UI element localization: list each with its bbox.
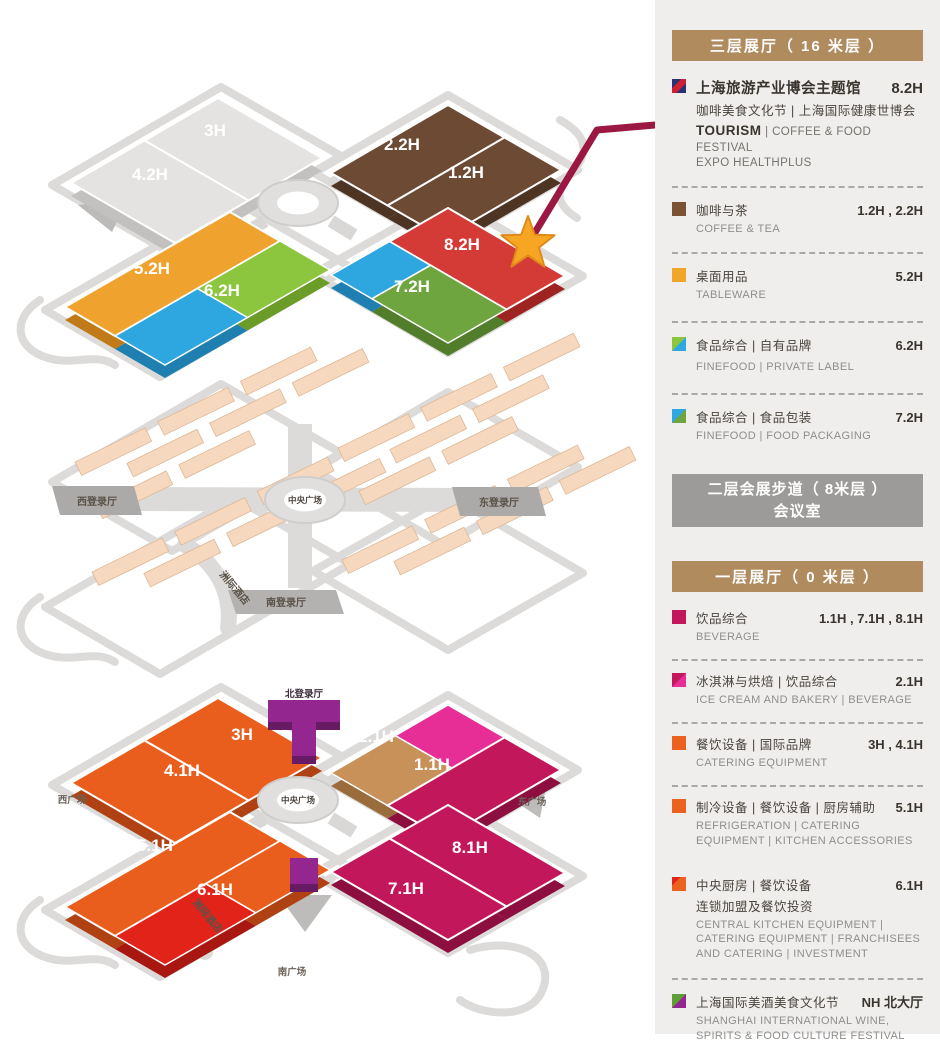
legend-item-icecream: 冰淇淋与烘焙 | 饮品综合2.1H ICE CREAM AND BAKERY |… <box>672 671 923 708</box>
legend-sidebar: 三层展厅（ 16 米层 ） 上海旅游产业博会主题馆 8.2H 咖啡美食文化节 |… <box>655 0 940 1034</box>
finefood-packaging-icon <box>672 409 686 423</box>
floor3-map: 3H 4.2H 2.2H 1.2H 5.2H 6.2H 8.2H 7.2H <box>21 87 655 378</box>
south-stub <box>290 858 318 884</box>
item-cn: 桌面用品 <box>696 266 748 285</box>
feature-title-cn: 上海旅游产业博会主题馆 <box>696 77 861 98</box>
beverage-icon <box>672 610 686 624</box>
legend-item-coffee-tea: 咖啡与茶1.2H , 2.2H COFFEE & TEA <box>672 200 923 237</box>
item-halls: 7.2H <box>896 410 923 425</box>
central-plaza-label-floor2: 中央广场 <box>288 495 323 505</box>
item-cn: 食品综合 | 自有品牌 <box>696 335 812 354</box>
central-plaza-label-floor1: 中央广场 <box>281 795 316 805</box>
hall-1.1h-label: 1.1H <box>414 755 450 774</box>
floor2-header: 二层会展步道（ 8米层 ） 会议室 <box>672 474 923 528</box>
coffee-tea-icon <box>672 202 686 216</box>
item-halls: 3H , 4.1H <box>868 737 923 752</box>
divider <box>672 785 923 787</box>
hall-4.2h-label: 4.2H <box>132 165 168 184</box>
refrigeration-icon <box>672 799 686 813</box>
legend-item-feature: 上海旅游产业博会主题馆 8.2H 咖啡美食文化节 | 上海国际健康世博会 TOU… <box>672 77 923 172</box>
legend-item-tableware: 桌面用品5.2H TABLEWARE <box>672 266 923 303</box>
item-halls: 5.2H <box>896 269 923 284</box>
item-cn: 饮品综合 <box>696 608 748 627</box>
item-halls: 5.1H <box>896 800 923 815</box>
item-en: CATERING EQUIPMENT <box>696 756 923 771</box>
item-en: REFRIGERATION | CATERING EQUIPMENT | KIT… <box>696 819 923 849</box>
item-en: CENTRAL KITCHEN EQUIPMENT | CATERING EQU… <box>696 918 923 963</box>
legend-item-central-kitchen: 中央厨房 | 餐饮设备6.1H 连锁加盟及餐饮投资 CENTRAL KITCHE… <box>672 875 923 963</box>
divider <box>672 186 923 188</box>
west-hall-label: 西登录厅 <box>77 495 117 508</box>
item-en: COFFEE & TEA <box>696 222 923 237</box>
item-halls: 2.1H <box>896 674 923 689</box>
north-hall-label: 北登录厅 <box>285 688 324 700</box>
divider <box>672 393 923 395</box>
feature-halls: 8.2H <box>891 80 923 97</box>
divider <box>672 722 923 724</box>
item-halls: 6.1H <box>896 878 923 893</box>
hall-2.2h-label: 2.2H <box>384 135 420 154</box>
hall-2.1h-label: 2.1H <box>358 727 394 746</box>
catering-equipment-icon <box>672 736 686 750</box>
divider <box>672 659 923 661</box>
feature-en-line2: EXPO HEALTHPLUS <box>696 157 812 169</box>
hall-3h-floor3-label: 3H <box>204 121 226 140</box>
hall-1.2h-label: 1.2H <box>448 163 484 182</box>
south-hall-label: 南登录厅 <box>266 596 306 609</box>
item-cn: 制冷设备 | 餐饮设备 | 厨房辅助 <box>696 797 875 816</box>
floor1-header: 一层展厅（ 0 米层 ） <box>672 561 923 592</box>
tourism-expo-icon <box>672 79 686 93</box>
item-halls: NH 北大厅 <box>862 992 923 1011</box>
feature-title-en: TOURISM | COFFEE & FOOD FESTIVALEXPO HEA… <box>696 122 923 172</box>
item-halls: 1.1H , 7.1H , 8.1H <box>819 611 923 626</box>
item-en: FINEFOOD | FOOD PACKAGING <box>696 429 923 444</box>
west-plaza-label: 西广场 <box>58 794 87 806</box>
floor2-header-line2: 会议室 <box>672 501 923 523</box>
icecream-bakery-icon <box>672 673 686 687</box>
hall-8.2h-label: 8.2H <box>444 235 480 254</box>
floor1-map: 3H 4.1H 2.1H 1.1H 5.1H 6.1H 8.1H 7.1H 北登… <box>21 687 583 1013</box>
hall-5.2h-label: 5.2H <box>134 259 170 278</box>
item-en: TABLEWARE <box>696 288 923 303</box>
hall-6.1h-label: 6.1H <box>197 880 233 899</box>
central-ring-hole-floor3 <box>277 192 319 215</box>
east-plaza-label: 东广场 <box>518 796 547 808</box>
hall-8.1h-label: 8.1H <box>452 838 488 857</box>
legend-item-beverage: 饮品综合1.1H , 7.1H , 8.1H BEVERAGE <box>672 608 923 645</box>
item-cn: 咖啡与茶 <box>696 200 748 219</box>
legend-item-finefood-packaging: 食品综合 | 食品包装7.2H FINEFOOD | FOOD PACKAGIN… <box>672 407 923 444</box>
item-en: FINEFOOD | PRIVATE LABEL <box>696 360 923 375</box>
finefood-private-icon <box>672 337 686 351</box>
hall-4.1h-label: 4.1H <box>164 761 200 780</box>
floor2-header-line1: 二层会展步道（ 8米层 ） <box>672 479 923 501</box>
hall-3h-floor1-label: 3H <box>231 725 253 744</box>
item-cn: 餐饮设备 | 国际品牌 <box>696 734 812 753</box>
floor3-header: 三层展厅（ 16 米层 ） <box>672 30 923 61</box>
divider <box>672 321 923 323</box>
east-hall-label: 东登录厅 <box>479 496 519 509</box>
central-kitchen-icon <box>672 877 686 891</box>
divider <box>672 978 923 980</box>
legend-item-wine-festival: 上海国际美酒美食文化节NH 北大厅 SHANGHAI INTERNATIONAL… <box>672 992 923 1044</box>
floor-maps: 3H 4.2H 2.2H 1.2H 5.2H 6.2H 8.2H 7.2H <box>0 0 655 1034</box>
wine-festival-icon <box>672 994 686 1008</box>
item-halls: 6.2H <box>896 338 923 353</box>
item-en: BEVERAGE <box>696 630 923 645</box>
item-en: SHANGHAI INTERNATIONAL WINE, SPIRITS & F… <box>696 1014 923 1044</box>
item-halls: 1.2H , 2.2H <box>857 203 923 218</box>
item-en: ICE CREAM AND BAKERY | BEVERAGE <box>696 693 923 708</box>
item-cn: 冰淇淋与烘焙 | 饮品综合 <box>696 671 838 690</box>
legend-item-catering: 餐饮设备 | 国际品牌3H , 4.1H CATERING EQUIPMENT <box>672 734 923 771</box>
hall-5.1h-label: 5.1H <box>137 836 173 855</box>
feature-en-lead: TOURISM <box>696 123 762 138</box>
hall-7.1h-label: 7.1H <box>388 879 424 898</box>
legend-item-refrigeration: 制冷设备 | 餐饮设备 | 厨房辅助5.1H REFRIGERATION | C… <box>672 797 923 849</box>
legend-item-finefood-private: 食品综合 | 自有品牌6.2H FINEFOOD | PRIVATE LABEL <box>672 335 923 375</box>
hall-6.2h-label: 6.2H <box>204 281 240 300</box>
tableware-icon <box>672 268 686 282</box>
south-plaza-label: 南广场 <box>278 966 307 978</box>
item-cn: 中央厨房 | 餐饮设备 <box>696 875 812 894</box>
feature-subtitle-cn: 咖啡美食文化节 | 上海国际健康世博会 <box>696 100 923 119</box>
divider <box>672 252 923 254</box>
item-cn: 食品综合 | 食品包装 <box>696 407 812 426</box>
item-cn: 上海国际美酒美食文化节 <box>696 992 839 1011</box>
floor2-map: 中央广场 西登录厅 东登录厅 南登录厅 洲际酒店 <box>21 327 636 674</box>
item-cn2: 连锁加盟及餐饮投资 <box>696 896 923 915</box>
hall-7.2h-label: 7.2H <box>394 277 430 296</box>
